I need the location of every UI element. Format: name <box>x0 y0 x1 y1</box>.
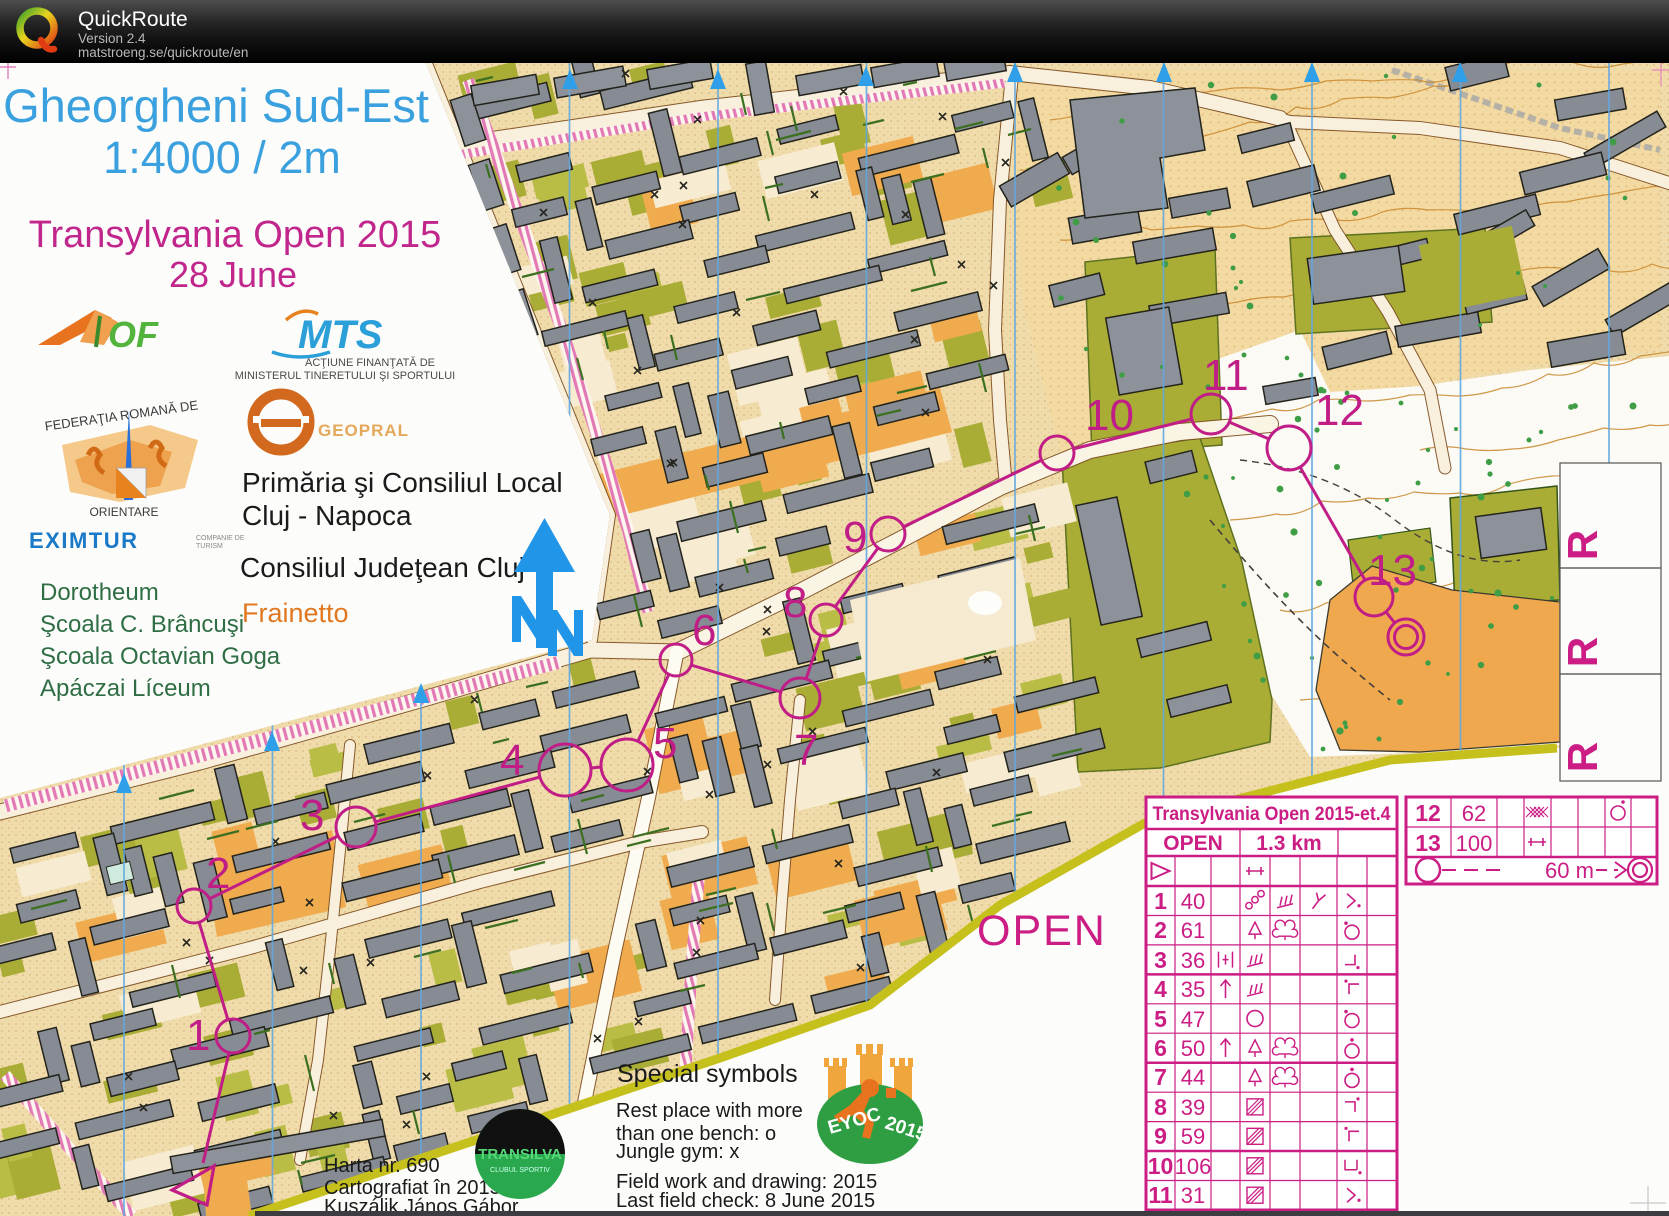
svg-text:R: R <box>1559 530 1606 560</box>
svg-text:GEOPRAL: GEOPRAL <box>318 421 409 440</box>
svg-text:Version 2.4: Version 2.4 <box>78 31 146 46</box>
svg-text:6: 6 <box>692 606 716 655</box>
svg-text:Dorotheum: Dorotheum <box>40 579 159 606</box>
svg-text:R: R <box>1559 637 1606 667</box>
svg-text:4: 4 <box>1154 976 1167 1002</box>
svg-text:7: 7 <box>794 726 818 775</box>
svg-text:31: 31 <box>1181 1183 1205 1208</box>
svg-text:OF: OF <box>108 314 159 355</box>
svg-text:TURISM: TURISM <box>196 543 223 550</box>
svg-text:11: 11 <box>1203 351 1249 400</box>
svg-text:matstroeng.se/quickroute/en: matstroeng.se/quickroute/en <box>78 45 248 60</box>
svg-text:10: 10 <box>1148 1153 1174 1179</box>
svg-text:Frainetto: Frainetto <box>242 598 349 628</box>
svg-text:4: 4 <box>500 736 524 785</box>
svg-text:35: 35 <box>1181 977 1205 1002</box>
svg-text:61: 61 <box>1181 918 1205 943</box>
svg-text:13: 13 <box>1415 830 1441 856</box>
svg-text:Last field check: 8 June 2015: Last field check: 8 June 2015 <box>616 1190 875 1212</box>
svg-text:OPEN: OPEN <box>977 907 1107 955</box>
svg-text:2: 2 <box>206 849 230 898</box>
svg-text:3: 3 <box>300 791 324 840</box>
svg-text:13: 13 <box>1368 546 1417 595</box>
svg-text:COMPANIE DE: COMPANIE DE <box>196 535 245 542</box>
svg-text:Apáczai Líceum: Apáczai Líceum <box>40 675 211 702</box>
svg-text:R: R <box>1559 742 1606 772</box>
svg-text:CLUBUL SPORTIV: CLUBUL SPORTIV <box>490 1167 550 1174</box>
svg-text:Gheorgheni Sud-Est: Gheorgheni Sud-Est <box>3 79 429 132</box>
svg-text:100: 100 <box>1456 831 1493 856</box>
svg-text:Transylvania Open 2015-et.4: Transylvania Open 2015-et.4 <box>1153 804 1391 825</box>
svg-text:ACŢIUNE FINANŢATĂ DE: ACŢIUNE FINANŢATĂ DE <box>305 356 435 369</box>
svg-text:10: 10 <box>1085 391 1134 440</box>
svg-text:Consiliul Judeţean Cluj: Consiliul Judeţean Cluj <box>240 552 525 583</box>
svg-text:40: 40 <box>1181 889 1205 914</box>
svg-text:39: 39 <box>1181 1095 1205 1120</box>
svg-text:50: 50 <box>1181 1036 1205 1061</box>
svg-text:3: 3 <box>1154 947 1167 973</box>
svg-text:Transylvania Open 2015: Transylvania Open 2015 <box>29 214 442 256</box>
svg-text:Cluj - Napoca: Cluj - Napoca <box>242 500 412 531</box>
svg-text:28 June: 28 June <box>169 254 297 295</box>
svg-text:Harta nr. 690: Harta nr. 690 <box>324 1155 440 1177</box>
svg-text:106: 106 <box>1175 1154 1212 1179</box>
svg-text:Şcoala C. Brâncuşi: Şcoala C. Brâncuşi <box>40 611 244 638</box>
svg-text:2: 2 <box>1154 917 1167 943</box>
svg-text:Rest place with more: Rest place with more <box>616 1100 803 1122</box>
svg-text:1: 1 <box>186 1011 210 1060</box>
svg-text:Jungle gym: x: Jungle gym: x <box>616 1141 739 1163</box>
svg-text:47: 47 <box>1181 1007 1205 1032</box>
svg-text:QuickRoute: QuickRoute <box>78 8 188 31</box>
svg-text:8: 8 <box>783 578 807 627</box>
svg-text:OPEN: OPEN <box>1163 832 1223 855</box>
svg-text:44: 44 <box>1181 1065 1205 1090</box>
svg-text:62: 62 <box>1462 801 1486 826</box>
svg-text:36: 36 <box>1181 948 1205 973</box>
svg-text:12: 12 <box>1315 386 1364 435</box>
svg-text:12: 12 <box>1415 800 1441 826</box>
svg-text:9: 9 <box>843 513 867 562</box>
svg-text:5: 5 <box>653 719 677 768</box>
svg-text:EXIMTUR: EXIMTUR <box>29 528 139 553</box>
svg-text:1: 1 <box>1154 888 1167 914</box>
svg-text:1.3 km: 1.3 km <box>1256 832 1321 855</box>
svg-text:ORIENTARE: ORIENTARE <box>89 505 158 519</box>
svg-text:MTS: MTS <box>298 313 383 357</box>
svg-text:60 m: 60 m <box>1545 858 1594 883</box>
svg-text:1:4000 / 2m: 1:4000 / 2m <box>103 132 341 183</box>
svg-text:6: 6 <box>1154 1035 1167 1061</box>
svg-text:Şcoala Octavian Goga: Şcoala Octavian Goga <box>40 643 281 670</box>
svg-text:TRANSILVA: TRANSILVA <box>478 1146 562 1163</box>
svg-text:59: 59 <box>1181 1124 1205 1149</box>
svg-text:Special symbols: Special symbols <box>617 1060 798 1088</box>
svg-text:9: 9 <box>1154 1123 1167 1149</box>
svg-text:11: 11 <box>1148 1182 1173 1208</box>
svg-text:7: 7 <box>1154 1064 1167 1090</box>
svg-text:Primăria şi Consiliul Local: Primăria şi Consiliul Local <box>242 467 563 498</box>
svg-text:MINISTERUL TINERETULUI ŞI SPOR: MINISTERUL TINERETULUI ŞI SPORTULUI <box>235 370 455 382</box>
svg-text:8: 8 <box>1154 1094 1167 1120</box>
svg-text:5: 5 <box>1154 1006 1167 1032</box>
